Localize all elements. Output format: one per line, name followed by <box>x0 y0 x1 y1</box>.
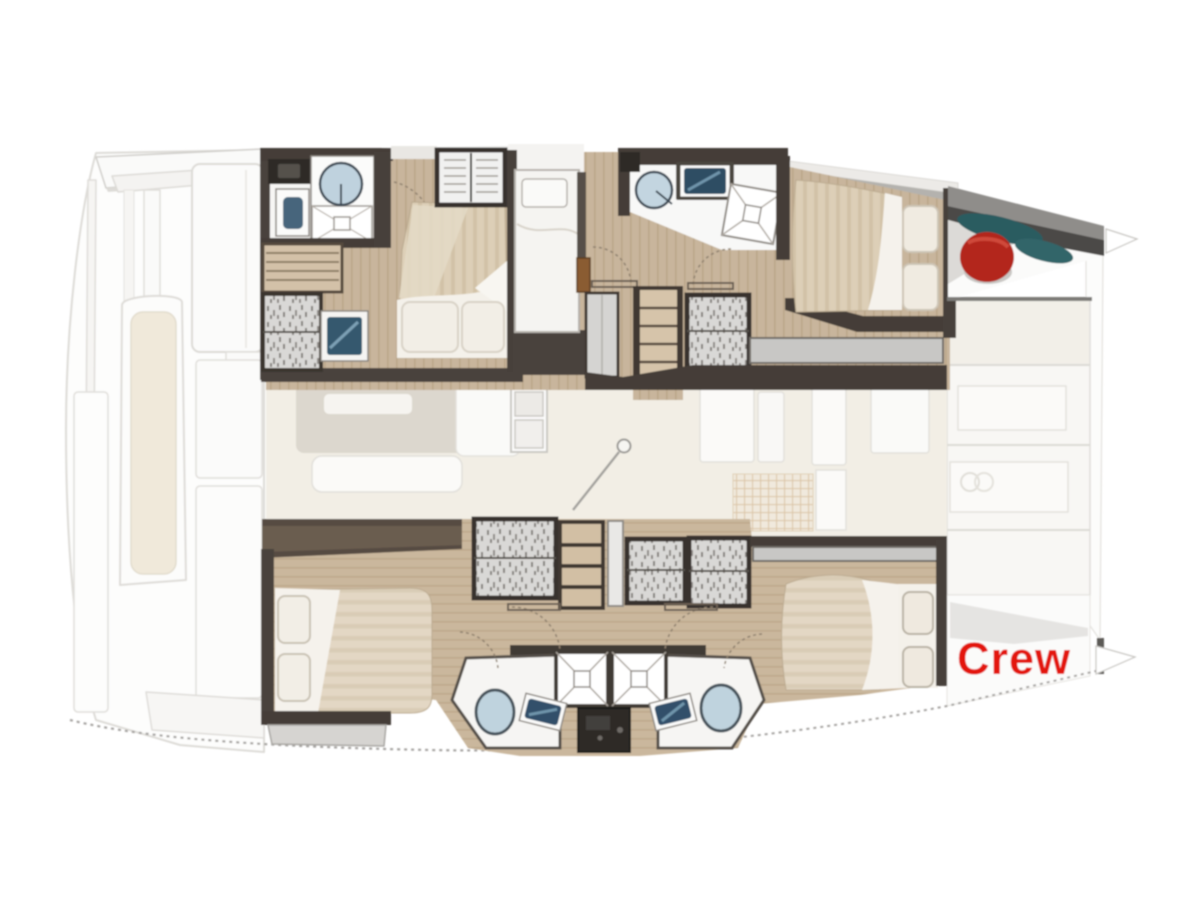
svg-text:Crew: Crew <box>957 633 1071 684</box>
